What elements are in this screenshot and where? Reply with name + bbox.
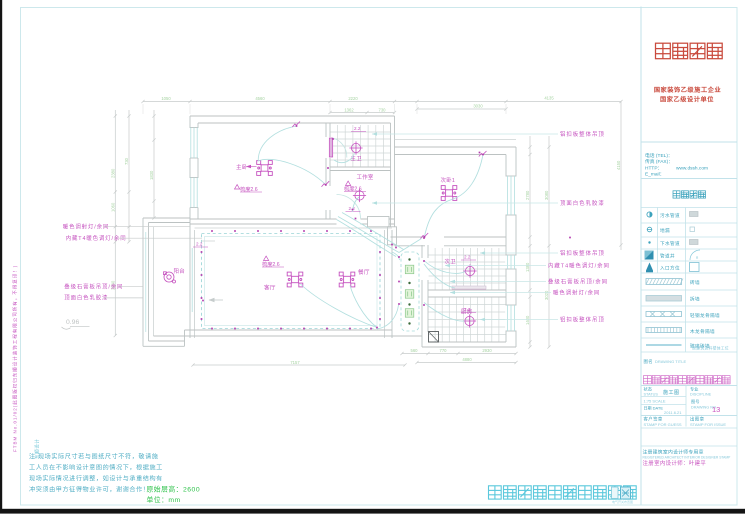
svg-text:下水管道: 下水管道: [660, 240, 680, 247]
svg-text:2380: 2380: [111, 168, 116, 178]
svg-text:顶面白色乳胶漆: 顶面白色乳胶漆: [560, 199, 605, 207]
svg-text:入口方位: 入口方位: [660, 265, 680, 272]
svg-text:日期 DATE: 日期 DATE: [644, 405, 664, 411]
svg-text:730: 730: [124, 157, 129, 165]
svg-text:暖色调射灯/余同: 暖色调射灯/余同: [553, 289, 600, 297]
svg-text:DISCIPLINE: DISCIPLINE: [690, 393, 712, 397]
svg-text:2.2: 2.2: [464, 307, 471, 312]
svg-text:工人员在不影响设计意图的情况下，根据施工: 工人员在不影响设计意图的情况下，根据施工: [29, 464, 163, 472]
svg-text:4150: 4150: [616, 160, 621, 170]
svg-text:管道井: 管道井: [660, 253, 675, 260]
svg-text:暖色调射灯/余同: 暖色调射灯/余同: [63, 223, 109, 231]
svg-text:1:75 SCALE: 1:75 SCALE: [644, 399, 666, 404]
svg-text:1830: 1830: [149, 170, 154, 180]
svg-text:3020: 3020: [544, 290, 549, 300]
svg-text:内藏T4暖色调灯/余同: 内藏T4暖色调灯/余同: [66, 234, 127, 242]
svg-text:2011.6.21: 2011.6.21: [664, 410, 682, 415]
svg-text:注 现场实际尺寸若与图纸尺寸不符，敬请施: 注 现场实际尺寸若与图纸尺寸不符，敬请施: [29, 453, 158, 461]
svg-text:次卧1: 次卧1: [441, 176, 456, 184]
svg-text:污水管道: 污水管道: [660, 212, 680, 219]
svg-text:1362: 1362: [344, 108, 354, 113]
svg-text:4880: 4880: [462, 357, 472, 362]
svg-text:拆墙: 拆墙: [690, 296, 700, 303]
svg-text:叠级石膏板吊顶/余同: 叠级石膏板吊顶/余同: [64, 283, 123, 291]
svg-text:铝扣板整体吊顶: 铝扣板整体吊顶: [560, 249, 605, 257]
svg-text:内藏T4暖色调灯/余同: 内藏T4暖色调灯/余同: [548, 262, 610, 270]
svg-text:E_mail：: E_mail：: [645, 171, 664, 177]
svg-text:次卫: 次卫: [445, 258, 457, 266]
svg-text:13: 13: [712, 405, 720, 414]
svg-text:7157: 7157: [290, 360, 300, 365]
svg-text:状态: 状态: [644, 386, 652, 393]
svg-text:工作室: 工作室: [357, 173, 374, 181]
svg-text:1050: 1050: [161, 96, 171, 101]
svg-text:3030: 3030: [473, 104, 483, 109]
svg-text:电气开关布置图: 电气开关布置图: [612, 499, 633, 504]
svg-text:DRAWING TITLE: DRAWING TITLE: [655, 359, 686, 364]
svg-text:国家乙级设计单位: 国家乙级设计单位: [660, 96, 714, 104]
svg-text:730: 730: [379, 108, 387, 113]
svg-text:1380: 1380: [525, 262, 530, 272]
svg-text:专业: 专业: [690, 386, 698, 393]
svg-text:STATUS: STATUS: [644, 393, 659, 397]
svg-text:4560: 4560: [255, 96, 265, 101]
svg-text:单位：mm: 单位：mm: [147, 495, 181, 504]
svg-text:主卧: 主卧: [236, 163, 248, 171]
svg-text:国家装饰乙级施工企业: 国家装饰乙级施工企业: [654, 86, 721, 94]
svg-text:施工图: 施工图: [663, 389, 680, 396]
svg-text:2930: 2930: [482, 348, 492, 353]
svg-text:STAMP FOR ISSUE: STAMP FOR ISSUE: [690, 422, 726, 427]
svg-text:STAMP FOR GUESS: STAMP FOR GUESS: [644, 422, 682, 427]
svg-text:图名: 图名: [644, 358, 654, 365]
svg-text:电话 (TEL)：: 电话 (TEL)：: [645, 152, 673, 159]
svg-text:客厅: 客厅: [264, 284, 276, 292]
svg-text:主卫: 主卫: [351, 155, 363, 163]
svg-text:铝扣板整体吊顶: 铝扣板整体吊顶: [560, 316, 605, 324]
svg-text:560: 560: [411, 348, 419, 353]
svg-text:地漏: 地漏: [660, 227, 670, 234]
svg-text:3080: 3080: [544, 190, 549, 200]
svg-text:冲突须由甲方征得物业许可，谢谢合作！: 冲突须由甲方征得物业许可，谢谢合作！: [29, 486, 150, 494]
svg-text:0.96: 0.96: [66, 319, 79, 326]
svg-text:770: 770: [440, 348, 448, 353]
svg-text:HTTP：: HTTP：: [645, 165, 662, 171]
svg-text:注册建筑室内设计师专用章: 注册建筑室内设计师专用章: [643, 449, 704, 456]
svg-text:餐厅: 餐厅: [358, 268, 370, 276]
svg-text:2220: 2220: [348, 96, 358, 101]
svg-text:www.dssh.com: www.dssh.com: [676, 165, 708, 171]
svg-text:2.2: 2.2: [354, 126, 361, 131]
svg-text:1400: 1400: [525, 315, 530, 325]
svg-text:2.2: 2.2: [196, 242, 203, 247]
svg-text:FTBM No.01/02(此图版权归东顺设计装饰工程有限公: FTBM No.01/02(此图版权归东顺设计装饰工程有限公司所有，不得复印！): [12, 265, 19, 452]
svg-text:注册室内设计师：叶建平: 注册室内设计师：叶建平: [643, 459, 707, 467]
svg-text:2780: 2780: [525, 190, 530, 200]
svg-text:传真 (FAX)：: 传真 (FAX)：: [645, 158, 673, 165]
svg-text:木龙骨隔墙: 木龙骨隔墙: [690, 328, 715, 335]
svg-text:原建筑资料楼体工位: 原建筑资料楼体工位: [692, 346, 729, 351]
svg-text:现场实际情况进行调整，如设计与承重结构有: 现场实际情况进行调整，如设计与承重结构有: [29, 475, 163, 483]
svg-text:顶面白色乳胶漆: 顶面白色乳胶漆: [64, 294, 108, 302]
svg-text:叠级石膏板吊顶/余同: 叠级石膏板吊顶/余同: [548, 278, 608, 286]
svg-text:阳台: 阳台: [174, 267, 185, 275]
svg-text:REGISTERED ARCHITECT INTERIOR: REGISTERED ARCHITECT INTERIOR DESIGNER S…: [643, 456, 732, 460]
svg-text:轻钢龙骨隔墙: 轻钢龙骨隔墙: [690, 312, 720, 319]
svg-text:1060: 1060: [111, 202, 116, 212]
svg-text:2.2: 2.2: [464, 255, 471, 260]
svg-text:4135: 4135: [544, 96, 554, 101]
svg-text:砖墙: 砖墙: [690, 279, 700, 286]
svg-text:铝扣板整体吊顶: 铝扣板整体吊顶: [560, 130, 605, 138]
svg-text:原始层高：2600: 原始层高：2600: [147, 485, 201, 494]
